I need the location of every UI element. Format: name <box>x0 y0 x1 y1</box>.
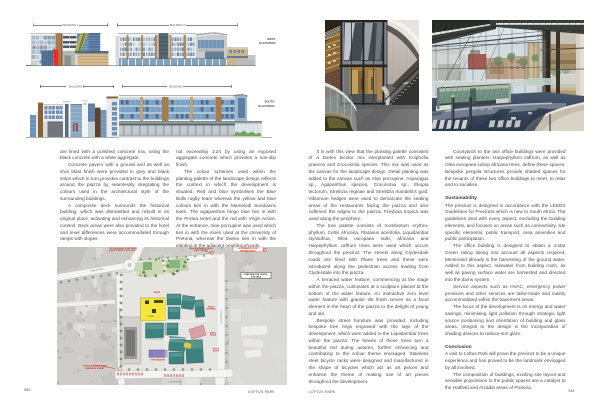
svg-text:BUILDING 2: BUILDING 2 <box>63 23 78 27</box>
svg-text:ELEVATION: ELEVATION <box>259 41 275 45</box>
svg-text:BUILDING 3: BUILDING 3 <box>170 23 185 27</box>
svg-text:HOTEL: HOTEL <box>148 316 155 318</box>
svg-text:BUILDING 5: BUILDING 5 <box>69 85 84 89</box>
svg-text:FOR GIRLS: FOR GIRLS <box>251 276 262 278</box>
svg-text:ENTRANCE/EXIT: ENTRANCE/EXIT <box>240 249 256 252</box>
svg-text:KIRKNESS STREET: KIRKNESS STREET <box>86 368 106 370</box>
svg-text:PARK STREET: PARK STREET <box>194 249 209 252</box>
svg-text:CLYDESDALE: CLYDESDALE <box>99 321 113 324</box>
svg-text:BUILDING 4: BUILDING 4 <box>169 85 184 89</box>
svg-text:PARK STREET & EXIT ONLY: PARK STREET & EXIT ONLY <box>110 249 138 252</box>
svg-text:ELEVATION: ELEVATION <box>258 104 274 108</box>
svg-text:LOFTUS ROAD: LOFTUS ROAD <box>169 381 183 384</box>
svg-text:BLOCK: BLOCK <box>213 351 220 353</box>
svg-text:PRETORIA ARMS: PRETORIA ARMS <box>151 359 166 362</box>
svg-text:ENTRANCE: ENTRANCE <box>206 308 216 311</box>
svg-text:PIAZZA: PIAZZA <box>210 334 217 337</box>
svg-text:CLYDESDALE ST: CLYDESDALE ST <box>219 310 223 325</box>
svg-text:PIAZZA: PIAZZA <box>154 291 161 294</box>
